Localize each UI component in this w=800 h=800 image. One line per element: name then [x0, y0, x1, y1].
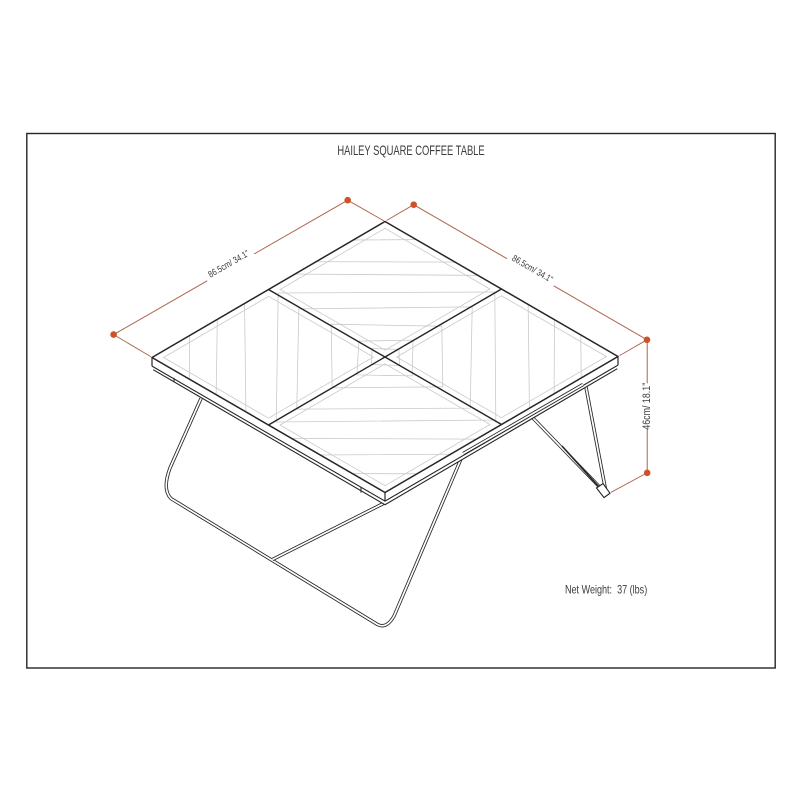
svg-text:46cm/ 18.1”: 46cm/ 18.1”	[642, 383, 654, 430]
svg-text:Net Weight: 37 (lbs): Net Weight: 37 (lbs)	[565, 585, 647, 597]
svg-text:HAILEY SQUARE COFFEE TABLE: HAILEY SQUARE COFFEE TABLE	[337, 145, 485, 159]
